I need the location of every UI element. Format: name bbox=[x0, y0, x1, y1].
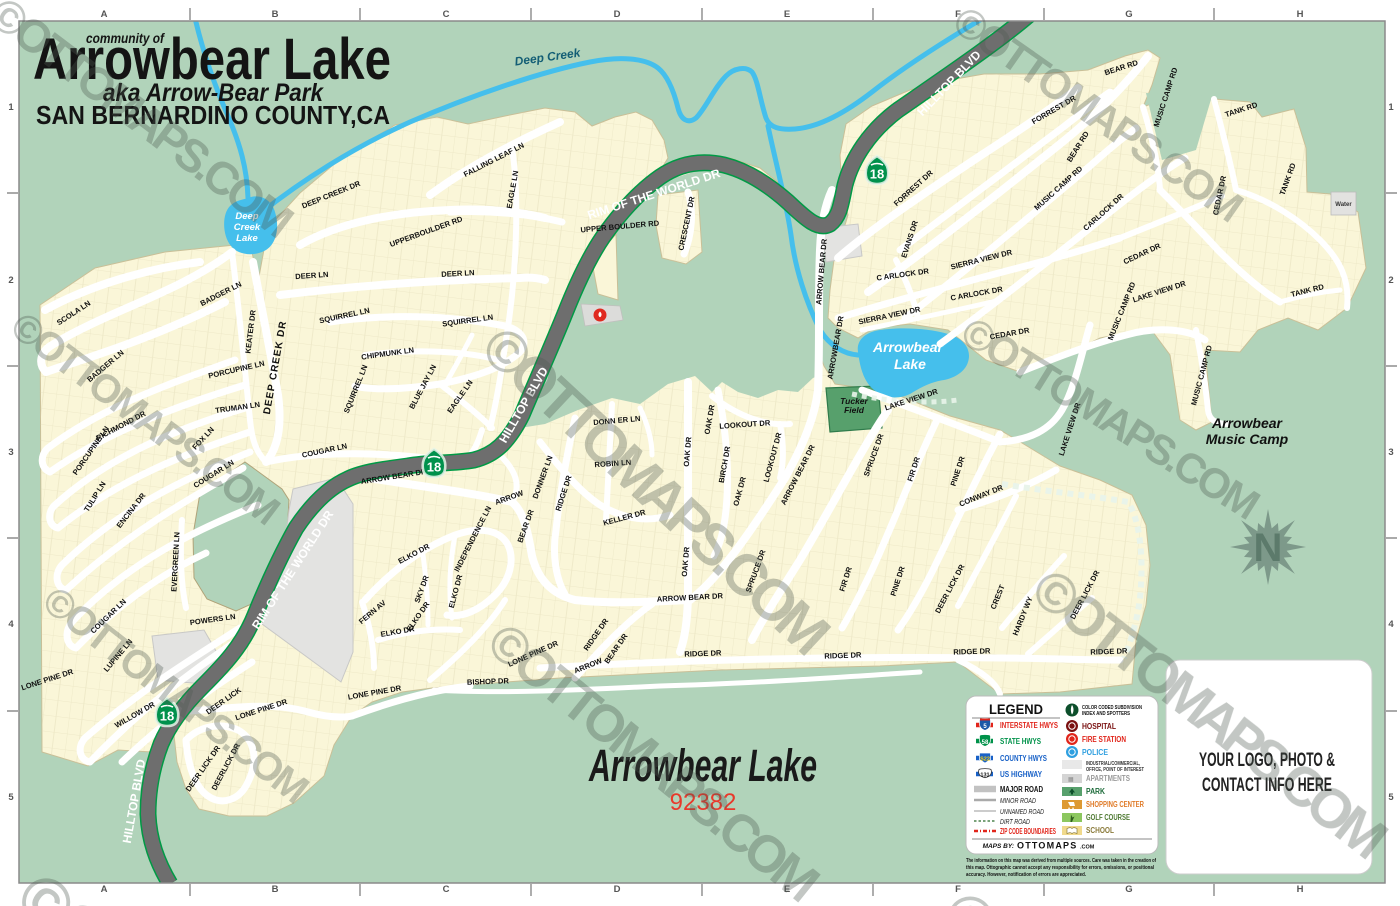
svg-text:Field: Field bbox=[844, 405, 865, 415]
svg-text:INTERSTATE HWYS: INTERSTATE HWYS bbox=[1000, 721, 1059, 730]
svg-text:FIRE STATION: FIRE STATION bbox=[1082, 735, 1126, 744]
svg-text:SHOPPING CENTER: SHOPPING CENTER bbox=[1086, 800, 1144, 809]
svg-text:5: 5 bbox=[1388, 792, 1394, 803]
svg-text:4: 4 bbox=[1388, 619, 1394, 630]
svg-text:C: C bbox=[443, 9, 450, 20]
svg-text:SCHOOL: SCHOOL bbox=[1086, 826, 1114, 835]
svg-text:D: D bbox=[614, 884, 621, 895]
svg-text:this map. Ottographic cannot a: this map. Ottographic cannot accept any … bbox=[966, 865, 1154, 871]
svg-text:MAPS BY:: MAPS BY: bbox=[983, 843, 1014, 850]
svg-text:1: 1 bbox=[8, 102, 14, 113]
svg-text:131: 131 bbox=[980, 773, 989, 779]
svg-text:Arrowbear: Arrowbear bbox=[1211, 415, 1284, 431]
svg-text:H: H bbox=[1297, 9, 1304, 20]
svg-text:The information on this map wa: The information on this map was derived … bbox=[966, 858, 1156, 864]
svg-text:4: 4 bbox=[8, 619, 14, 630]
svg-text:2: 2 bbox=[1388, 275, 1393, 286]
svg-text:MAJOR ROAD: MAJOR ROAD bbox=[1000, 785, 1043, 794]
svg-text:RIDGE DR: RIDGE DR bbox=[684, 648, 722, 658]
svg-text:E: E bbox=[784, 9, 790, 20]
svg-text:COUNTY HWYS: COUNTY HWYS bbox=[1000, 754, 1048, 763]
svg-text:Arrowbear: Arrowbear bbox=[872, 339, 945, 355]
svg-text:RIDGE DR: RIDGE DR bbox=[953, 646, 991, 656]
svg-text:INDEX AND SPOTTERS: INDEX AND SPOTTERS bbox=[1082, 711, 1130, 717]
svg-text:A: A bbox=[101, 884, 108, 895]
svg-text:18: 18 bbox=[870, 167, 884, 182]
svg-text:HOSPITAL: HOSPITAL bbox=[1082, 722, 1116, 731]
svg-text:OTTOMAPS: OTTOMAPS bbox=[1017, 841, 1077, 851]
svg-text:G: G bbox=[1125, 9, 1132, 20]
svg-text:.COM: .COM bbox=[1080, 845, 1095, 851]
svg-text:C: C bbox=[443, 884, 450, 895]
svg-text:MINOR ROAD: MINOR ROAD bbox=[1000, 798, 1036, 805]
svg-text:RIDGE DR: RIDGE DR bbox=[824, 650, 862, 660]
svg-text:APARTMENTS: APARTMENTS bbox=[1086, 774, 1131, 783]
svg-text:Water: Water bbox=[1335, 202, 1352, 208]
svg-text:58: 58 bbox=[982, 740, 989, 746]
svg-text:POLICE: POLICE bbox=[1082, 748, 1109, 757]
svg-text:B: B bbox=[272, 9, 279, 20]
svg-text:LEGEND: LEGEND bbox=[989, 701, 1043, 717]
svg-text:D: D bbox=[614, 9, 621, 20]
svg-text:US HIGHWAY: US HIGHWAY bbox=[1000, 770, 1043, 779]
svg-text:B: B bbox=[272, 884, 279, 895]
svg-text:Music Camp: Music Camp bbox=[1206, 431, 1289, 447]
svg-text:18: 18 bbox=[427, 460, 441, 475]
svg-text:5: 5 bbox=[8, 792, 14, 803]
svg-text:G: G bbox=[1125, 884, 1132, 895]
svg-text:N: N bbox=[1254, 526, 1283, 570]
svg-text:ZIP CODE BOUNDARIES: ZIP CODE BOUNDARIES bbox=[1000, 827, 1056, 836]
svg-text:3: 3 bbox=[8, 447, 13, 458]
svg-text:UNNAMED ROAD: UNNAMED ROAD bbox=[1000, 809, 1044, 816]
svg-text:STATE HWYS: STATE HWYS bbox=[1000, 737, 1042, 746]
svg-text:A: A bbox=[101, 9, 108, 20]
svg-text:GOLF COURSE: GOLF COURSE bbox=[1086, 813, 1130, 822]
svg-text:S22: S22 bbox=[980, 757, 990, 763]
svg-text:OFFICE, POINT OF INTEREST: OFFICE, POINT OF INTEREST bbox=[1086, 767, 1144, 773]
svg-text:accuracy. However, notificatio: accuracy. However, notification of error… bbox=[966, 872, 1086, 878]
svg-text:3: 3 bbox=[1388, 447, 1393, 458]
svg-text:1: 1 bbox=[1388, 102, 1394, 113]
svg-text:DIRT ROAD: DIRT ROAD bbox=[1000, 819, 1030, 826]
svg-text:PARK: PARK bbox=[1086, 787, 1105, 796]
svg-text:H: H bbox=[1297, 884, 1304, 895]
svg-text:▦: ▦ bbox=[1068, 777, 1074, 783]
svg-text:2: 2 bbox=[8, 275, 13, 286]
svg-text:Lake: Lake bbox=[894, 356, 926, 372]
svg-text:DEER LN: DEER LN bbox=[441, 268, 475, 279]
